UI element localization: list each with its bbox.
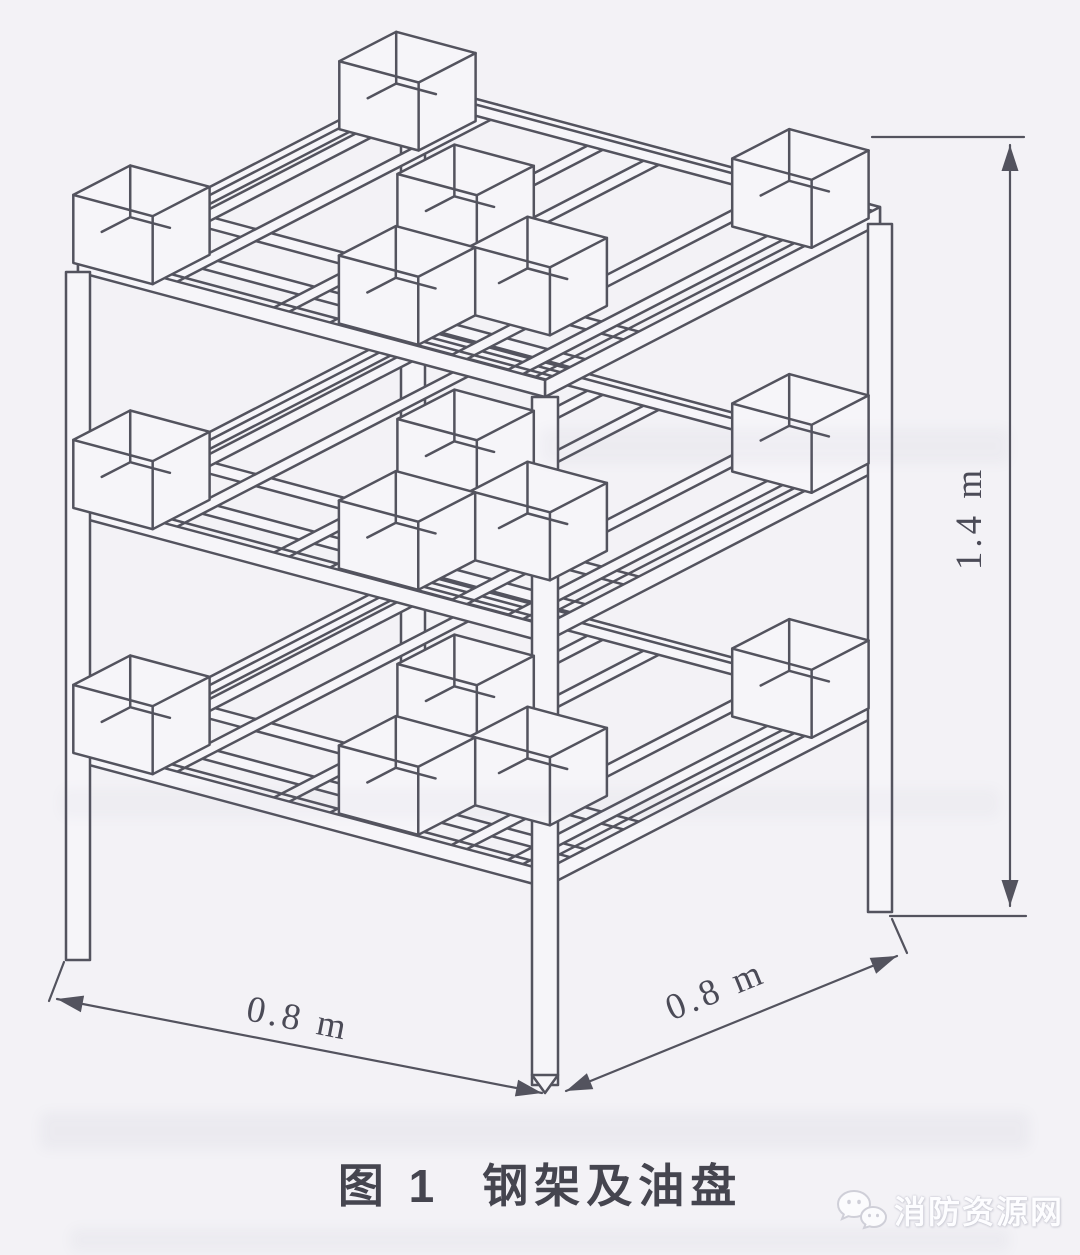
frame-post-left <box>66 272 90 960</box>
dimension-label-width-left: 0.8 m <box>243 988 353 1048</box>
oil-pan <box>732 374 868 493</box>
oil-pan <box>73 411 209 530</box>
oil-pan <box>339 226 475 345</box>
dimension-arrowhead <box>870 956 897 974</box>
steel-frame <box>66 32 892 1093</box>
dimension-arrowhead <box>566 1073 593 1091</box>
dimension-arrowhead <box>1002 880 1019 906</box>
steel-frame-and-oil-pans-drawing: 0.8 m0.8 m1.4 m <box>0 0 1080 1255</box>
oil-pan <box>732 619 868 738</box>
frame-post-right <box>868 224 892 912</box>
oil-pan <box>339 471 475 590</box>
oil-pan <box>471 707 607 826</box>
oil-pan <box>339 716 475 835</box>
figure-number: 图 1 <box>338 1160 440 1212</box>
oil-pan <box>471 217 607 336</box>
oil-pan <box>73 656 209 775</box>
oil-pan <box>73 166 209 285</box>
oil-pan <box>339 32 475 151</box>
oil-pan <box>732 129 868 248</box>
chat-bubbles-icon <box>834 1186 890 1234</box>
extension-line <box>892 919 907 953</box>
dimension-label-height: 1.4 m <box>949 466 990 570</box>
figure-title: 钢架及油盘 <box>482 1160 742 1212</box>
watermark-text: 消防资源网 <box>894 1187 1064 1233</box>
dimension-arrowhead <box>1002 145 1019 171</box>
extension-line <box>49 962 64 1001</box>
dimension-label-width-right: 0.8 m <box>660 952 772 1029</box>
oil-pan <box>471 462 607 581</box>
scanned-figure-page: 0.8 m0.8 m1.4 m 图 1钢架及油盘 消防资源网 <box>0 0 1080 1255</box>
dimension-arrowhead <box>57 996 84 1013</box>
site-watermark: 消防资源网 <box>834 1186 1064 1234</box>
